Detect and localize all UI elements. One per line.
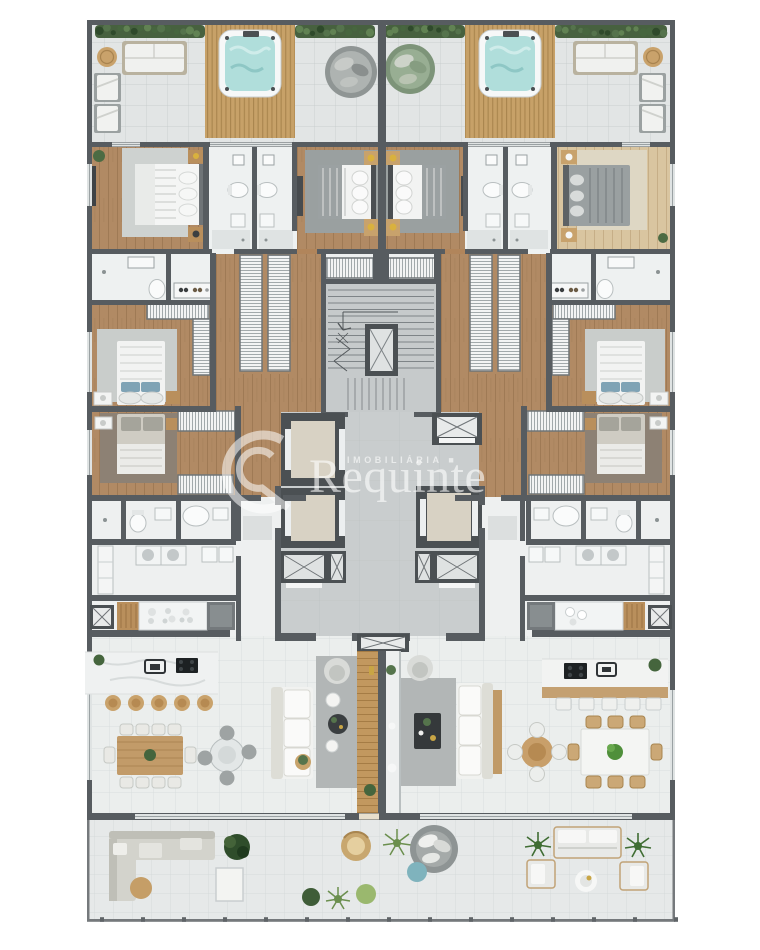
svg-text:IMOBILIÁRIA ■: IMOBILIÁRIA ■	[347, 455, 457, 465]
